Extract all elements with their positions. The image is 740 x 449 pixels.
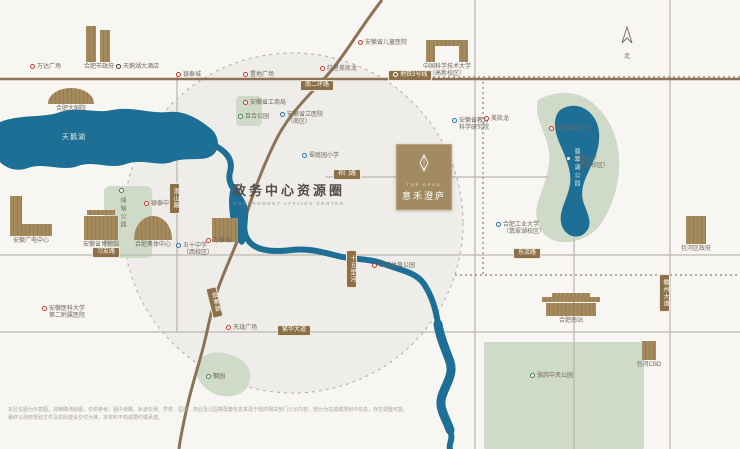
compass-north-icon	[619, 26, 635, 46]
red-poi-dot-icon	[372, 263, 377, 268]
red-poi-dot-icon	[320, 66, 325, 71]
poi-label: 天珑广场	[233, 325, 257, 332]
building-label-合肥大剧院: 合肥大剧院	[56, 106, 86, 113]
building-包河CBD	[642, 341, 656, 360]
road-label-潜山路: 潜山路	[169, 183, 180, 214]
poi-置地广场: 置地广场	[243, 72, 274, 79]
red-poi-dot-icon	[30, 64, 35, 69]
map-title: 政务中心资源圈	[233, 180, 353, 199]
poi-label: 匡河体育公园	[379, 263, 415, 270]
road-label-祁门路: 祁门路	[333, 169, 361, 180]
building-label-合肥奥体中心: 合肥奥体中心	[135, 242, 171, 249]
poi-label: 加侨国际广场	[556, 126, 592, 133]
building-label-合肥南站: 合肥南站	[559, 318, 583, 325]
green-poi-dot-icon	[238, 114, 243, 119]
project-logo-icon	[418, 154, 430, 172]
poi-label: 红星美凯龙	[327, 66, 357, 73]
road-label-东流路: 东流路	[513, 248, 541, 259]
blue-poi-dot-icon	[176, 243, 181, 248]
disclaimer-line-1: 本区位图为示意图，非精确测绘图，仅供参考；图中道路、轨道交通、学校、医院、商业及…	[8, 407, 408, 413]
compass-label: 北	[616, 51, 638, 60]
poi-翠庭园小学: 翠庭园小学	[302, 153, 339, 160]
red-poi-dot-icon	[144, 201, 149, 206]
water-label-翡翠湖公园: 翡翠湖公园	[572, 148, 581, 188]
road-label-十五里河: 十五里河	[346, 250, 357, 288]
map-title-block: 政务中心资源圈 GOVERNMENT AFFAIRS CENTER	[233, 180, 353, 206]
poi-label: 美凯龙	[491, 116, 509, 123]
compass: 北	[616, 26, 638, 60]
poi-合肥工业大学: 合肥工业大学（翡翠湖校区）	[496, 222, 545, 236]
poi-label: 万达广场	[37, 64, 61, 71]
poi-label: 合肥工业大学（翡翠湖校区）	[503, 222, 545, 236]
river-wide-section	[438, 324, 451, 430]
poi-label: 银泰城	[183, 72, 201, 79]
building-合肥南站	[542, 293, 600, 316]
poi-天鹅湖大酒店: 天鹅湖大酒店	[116, 64, 159, 71]
dark-poi-dot-icon	[116, 64, 121, 69]
road-label-繁华大道: 繁华大道	[277, 325, 311, 336]
blue-poi-dot-icon	[302, 153, 307, 158]
resource-circle	[123, 53, 463, 393]
poi-匡河体育公园: 匡河体育公园	[372, 263, 415, 270]
poi-骆岗中央公园: 骆岗中央公园	[530, 373, 573, 380]
poi-label: 万象城	[213, 238, 231, 245]
poi-红星美凯龙: 红星美凯龙	[320, 66, 357, 73]
poi-徽园: 徽园	[206, 374, 225, 381]
project-name-en: TOP OPUS	[397, 182, 451, 187]
luogang-central-park	[484, 342, 644, 449]
poi-label: 安徽医科大学第二附属医院	[49, 306, 85, 320]
building-label-安徽广电中心: 安徽广电中心	[13, 238, 49, 245]
red-poi-dot-icon	[243, 72, 248, 77]
poi-安徽省立医院: 安徽省立医院（南区）	[280, 112, 323, 126]
poi-安徽省儿童医院: 安徽省儿童医院	[358, 40, 407, 47]
red-poi-dot-icon	[176, 72, 181, 77]
green-poi-dot-icon	[119, 188, 124, 193]
metro-station-icon	[393, 72, 398, 77]
project-name-cn: 意禾澄庐	[397, 189, 451, 202]
poi-label: 五十中学（西校区）	[183, 243, 213, 257]
poi-加侨国际广场: 加侨国际广场	[549, 126, 592, 133]
red-poi-dot-icon	[549, 126, 554, 131]
location-map: 合肥市政府合肥大剧院安徽省博物馆合肥奥体中心中国科学技术大学（高新校区）安徽广电…	[0, 0, 740, 449]
blue-poi-dot-icon	[280, 112, 285, 117]
red-poi-dot-icon	[243, 100, 248, 105]
poi-label: 天鹅湖大酒店	[123, 64, 159, 71]
road-label-徽州大道: 徽州大道	[659, 274, 670, 312]
red-poi-dot-icon	[226, 325, 231, 330]
green-poi-dot-icon	[206, 374, 211, 379]
green-poi-dot-icon	[530, 373, 535, 378]
poi-label: 安徽省儿童医院	[365, 40, 407, 47]
poi-label: 翠庭园小学	[309, 153, 339, 160]
poi-银泰城: 银泰城	[176, 72, 201, 79]
red-poi-dot-icon	[484, 116, 489, 121]
poi-绿轴公园: 绿轴公园	[118, 188, 125, 229]
poi-label: 骆岗中央公园	[537, 373, 573, 380]
poi-label: 绿轴公园	[118, 197, 125, 229]
poi-label: 徽园	[213, 374, 225, 381]
blue-poi-dot-icon	[496, 222, 501, 227]
poi-百合公园: 百合公园	[238, 114, 269, 121]
disclaimer-line-2: 最终以政府规划文件及实际建设交付为准，本资料不构成要约或承诺。	[8, 415, 163, 421]
building-包河区政府	[686, 216, 706, 244]
building-安徽省博物馆	[84, 210, 118, 240]
poi-美凯龙: 美凯龙	[484, 116, 509, 123]
map-subtitle: GOVERNMENT AFFAIRS CENTER	[233, 201, 353, 206]
poi-万达广场: 万达广场	[30, 64, 61, 71]
building-合肥市政府	[84, 26, 114, 62]
project-marker: TOP OPUS 意禾澄庐	[396, 144, 452, 210]
poi-label: 置地广场	[250, 72, 274, 79]
building-中国科学技术大学	[426, 40, 468, 62]
red-poi-dot-icon	[42, 306, 47, 311]
poi-安徽医科大学: 安徽医科大学第二附属医院	[42, 306, 85, 320]
road-label-南二环路: 南二环路	[300, 80, 334, 91]
poi-label: 安徽省立医院（南区）	[287, 112, 323, 126]
poi-label: 百合公园	[245, 114, 269, 121]
poi-label: 安徽省工商局	[250, 100, 286, 107]
poi-五十中学: 五十中学（西校区）	[176, 243, 213, 257]
building-合肥奥体中心	[134, 216, 172, 240]
metro-label-地铁3号线: 地铁3号线	[388, 70, 432, 81]
poi-安徽省工商局: 安徽省工商局	[243, 100, 286, 107]
building-label-合肥市政府: 合肥市政府	[84, 64, 114, 71]
red-poi-dot-icon	[358, 40, 363, 45]
poi-天珑广场: 天珑广场	[226, 325, 257, 332]
blue-poi-dot-icon	[566, 156, 571, 161]
building-合肥大剧院	[48, 88, 94, 104]
road-label-习友路: 习友路	[92, 247, 120, 258]
building-label-包河区政府: 包河区政府	[681, 246, 711, 253]
water-label-天鹅湖: 天鹅湖	[62, 132, 86, 142]
building-安徽广电中心	[10, 196, 52, 236]
building-label-包河CBD: 包河CBD	[637, 362, 662, 369]
blue-poi-dot-icon	[452, 118, 457, 123]
